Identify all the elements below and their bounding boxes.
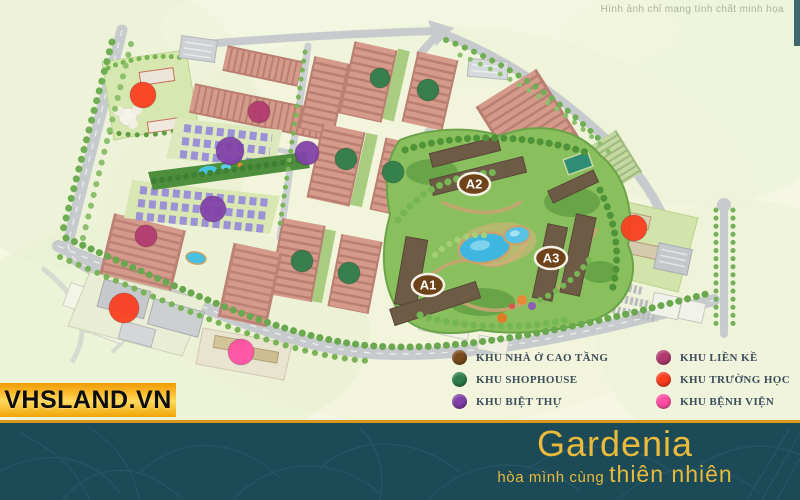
- zone-dot-shophouse: [370, 68, 390, 88]
- zone-dot-biet-thu: [216, 137, 244, 165]
- vhsland-watermark: VHSLAND.VN: [0, 383, 176, 417]
- zone-dot-truong-hoc: [109, 293, 139, 323]
- legend-dot-truong-hoc: [656, 372, 671, 387]
- zone-dot-lien-ke: [135, 225, 157, 247]
- disclaimer-text: Hình ảnh chỉ mang tính chất minh họa: [601, 4, 784, 15]
- zone-dot-shophouse: [382, 161, 404, 183]
- brand-name: Gardenia: [450, 424, 780, 464]
- svg-text:A1: A1: [420, 278, 437, 293]
- slogan-emphasis: thiên nhiên: [609, 461, 733, 487]
- brand-block: Gardenia hòa mình cùng thiên nhiên: [450, 424, 780, 489]
- zone-dot-truong-hoc: [130, 82, 156, 108]
- legend-column-left: KHU NHÀ Ở CAO TẦNGKHU SHOPHOUSEKHU BIỆT …: [452, 350, 656, 409]
- legend: KHU NHÀ Ở CAO TẦNGKHU SHOPHOUSEKHU BIỆT …: [452, 350, 790, 409]
- zone-dot-shophouse: [291, 250, 313, 272]
- legend-item-truong-hoc: KHU TRƯỜNG HỌC: [656, 372, 790, 387]
- zone-dot-biet-thu: [295, 141, 319, 165]
- legend-dot-shophouse: [452, 372, 467, 387]
- zone-dot-shophouse: [417, 79, 439, 101]
- legend-column-right: KHU LIỀN KỀKHU TRƯỜNG HỌCKHU BỆNH VIỆN: [656, 350, 790, 409]
- block-marker-A3: A3: [535, 247, 567, 269]
- legend-label: KHU SHOPHOUSE: [476, 374, 577, 386]
- zone-dot-benh-vien: [228, 339, 254, 365]
- zone-dot-lien-ke: [248, 101, 270, 123]
- block-marker-A2: A2: [458, 173, 490, 195]
- zone-dot-truong-hoc: [621, 215, 647, 241]
- slogan-prefix: hòa mình cùng: [497, 469, 604, 486]
- svg-text:A2: A2: [466, 177, 483, 192]
- svg-text:A3: A3: [543, 251, 560, 266]
- legend-item-shophouse: KHU SHOPHOUSE: [452, 372, 656, 387]
- legend-label: KHU BỆNH VIỆN: [680, 396, 774, 408]
- legend-label: KHU NHÀ Ở CAO TẦNG: [476, 352, 608, 364]
- legend-label: KHU BIỆT THỰ: [476, 396, 562, 408]
- zone-dot-biet-thu: [200, 196, 226, 222]
- legend-dot-lien-ke: [656, 350, 671, 365]
- central-complex: [384, 128, 633, 333]
- legend-item-benh-vien: KHU BỆNH VIỆN: [656, 394, 790, 409]
- legend-item-cao-tang: KHU NHÀ Ở CAO TẦNG: [452, 350, 656, 365]
- legend-dot-biet-thu: [452, 394, 467, 409]
- zone-dot-shophouse: [335, 148, 357, 170]
- edge-artifact: [794, 0, 800, 46]
- footer-band: Gardenia hòa mình cùng thiên nhiên: [0, 420, 800, 500]
- legend-label: KHU TRƯỜNG HỌC: [680, 374, 790, 386]
- legend-label: KHU LIỀN KỀ: [680, 352, 758, 364]
- legend-dot-cao-tang: [452, 350, 467, 365]
- zone-dot-shophouse: [338, 262, 360, 284]
- legend-dot-benh-vien: [656, 394, 671, 409]
- brand-slogan: hòa mình cùng thiên nhiên: [450, 463, 780, 489]
- legend-item-biet-thu: KHU BIỆT THỰ: [452, 394, 656, 409]
- block-marker-A1: A1: [412, 274, 444, 296]
- legend-item-lien-ke: KHU LIỀN KỀ: [656, 350, 790, 365]
